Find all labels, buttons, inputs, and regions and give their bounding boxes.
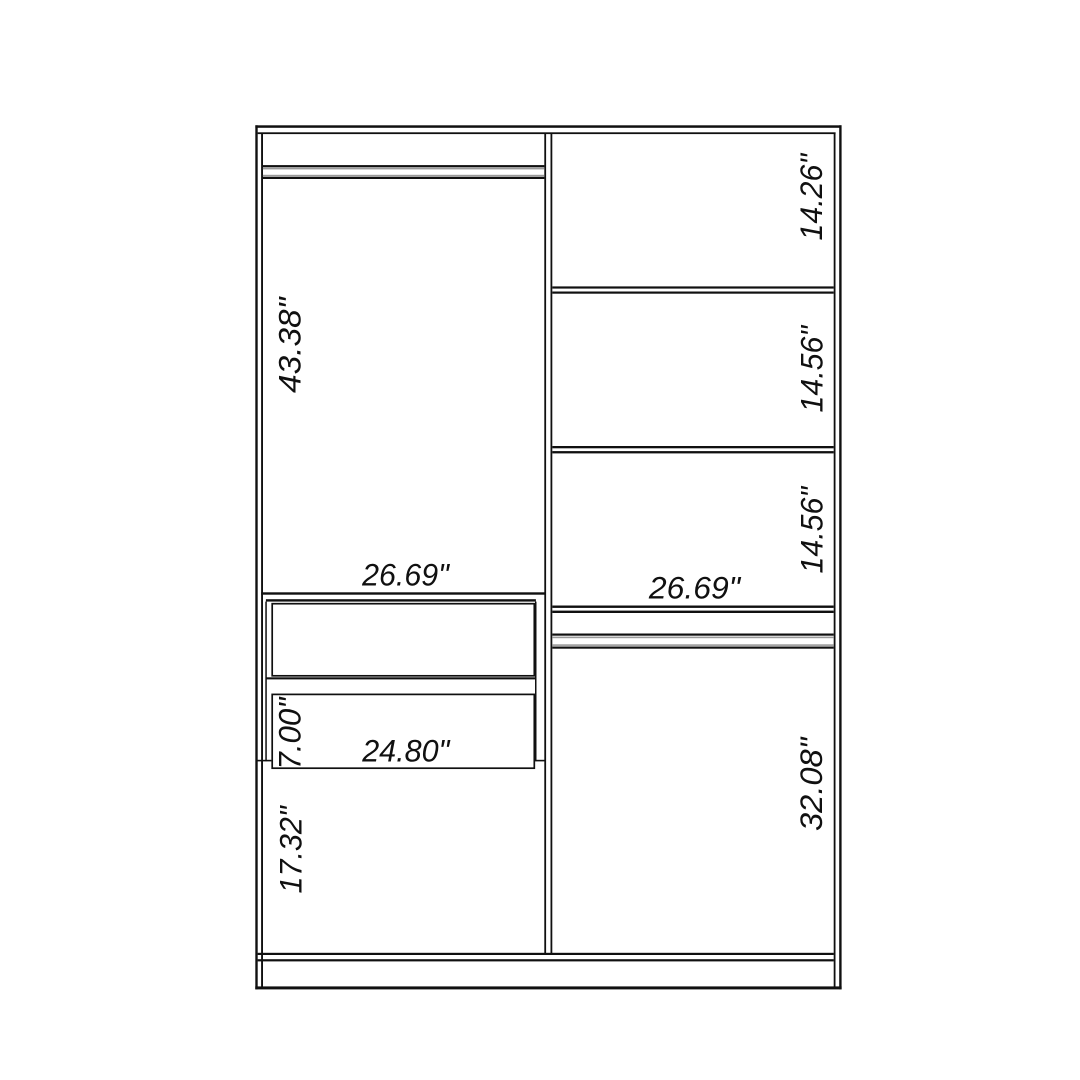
svg-text:7.00": 7.00" [271,696,307,770]
svg-text:17.32": 17.32" [272,805,308,894]
svg-text:26.69": 26.69" [648,569,742,605]
svg-text:24.80": 24.80" [361,733,451,769]
svg-text:14.56": 14.56" [794,324,830,412]
svg-text:32.08": 32.08" [793,736,829,831]
svg-text:26.69": 26.69" [361,557,450,593]
svg-text:43.38": 43.38" [271,296,307,393]
svg-text:14.56": 14.56" [794,485,830,573]
svg-text:14.26": 14.26" [793,152,829,240]
